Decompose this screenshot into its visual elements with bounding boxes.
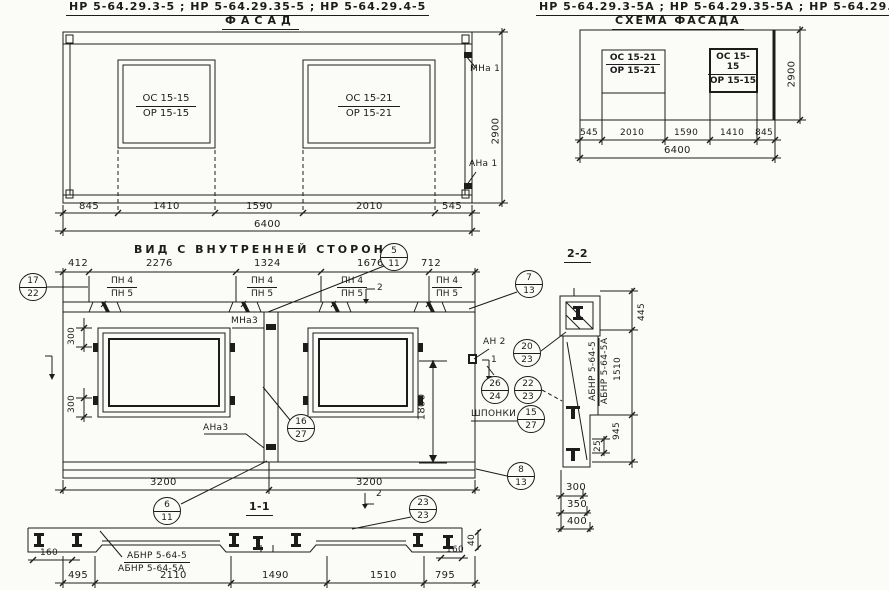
pn-bottom: ПН 5 xyxy=(432,288,462,299)
pn-mark: ПН 4 ПН 5 xyxy=(432,276,462,300)
dim-label: 300 xyxy=(566,482,586,494)
callout-top: 6 xyxy=(154,498,180,512)
dim-label: 412 xyxy=(68,258,88,270)
dim-label: 795 xyxy=(435,570,455,582)
callout-bottom: 22 xyxy=(20,288,46,299)
section-2-2-lines xyxy=(556,288,638,532)
dim-label: 40 xyxy=(467,534,477,546)
callout-bottom: 11 xyxy=(381,258,407,269)
callout-bottom: 27 xyxy=(518,420,544,431)
dim-label: 495 xyxy=(68,570,88,582)
pn-top: ПН 4 xyxy=(337,276,367,288)
drawing-sheet: НР 5-64.29.3-5 ; НР 5-64.29.35-5 ; НР 5-… xyxy=(0,0,889,590)
pn-bottom: ПН 5 xyxy=(247,288,277,299)
dim-label: 1490 xyxy=(262,570,289,582)
dim-label: 3200 xyxy=(356,477,383,489)
callout-bottom: 23 xyxy=(515,391,541,402)
callout-circle: 813 xyxy=(507,462,535,490)
callout-bottom: 23 xyxy=(410,510,436,521)
beam-mark-label: АБНР 5-64-5 xyxy=(124,551,190,563)
section-2-flag-label: 2 xyxy=(376,489,382,499)
facade-node-bottom-label: АНа 1 xyxy=(469,159,498,169)
dim-label: 845 xyxy=(79,201,99,213)
dim-label: 1590 xyxy=(674,128,698,138)
callout-bottom: 24 xyxy=(482,391,508,402)
window-mark-top: ОС 15-21 xyxy=(338,93,400,107)
facade-node-top-label: МНа 1 xyxy=(470,64,500,74)
dim-label: 3200 xyxy=(150,477,177,489)
window-mark-top: ОС 15-15 xyxy=(136,93,196,107)
pn-mark: ПН 4 ПН 5 xyxy=(107,276,137,300)
window-mark-bottom: ОР 15-21 xyxy=(338,107,400,120)
dim-label: 845 xyxy=(755,128,773,138)
dim-label: 2110 xyxy=(160,570,187,582)
dim-label: 300 xyxy=(67,395,77,413)
callout-bottom: 27 xyxy=(288,429,314,440)
callout-top: 16 xyxy=(288,415,314,429)
section-2-2-title: 2-2 xyxy=(564,248,591,263)
dim-label: 1410 xyxy=(153,201,180,213)
dim-label: 1410 xyxy=(720,128,744,138)
dim-label: 1800 xyxy=(416,394,428,421)
dim-label: 2010 xyxy=(356,201,383,213)
facade-window-right-mark: ОС 15-21 ОР 15-21 xyxy=(338,93,400,119)
callout-top: 23 xyxy=(410,496,436,510)
dim-label: 350 xyxy=(567,499,587,511)
callout-top: 22 xyxy=(515,377,541,391)
dim-label: 2900 xyxy=(490,118,502,145)
dim-label: 1510 xyxy=(613,357,623,381)
dim-label: 445 xyxy=(637,303,647,321)
dim-label: 1590 xyxy=(246,201,273,213)
callout-circle: 611 xyxy=(153,497,181,525)
callout-circle: 1527 xyxy=(517,405,545,433)
beam-mark-label: АБНР 5-64-5 xyxy=(588,341,598,401)
pn-bottom: ПН 5 xyxy=(337,288,367,299)
dim-label: 712 xyxy=(421,258,441,270)
dim-label: 545 xyxy=(442,201,462,213)
callout-top: 8 xyxy=(508,463,534,477)
window-mark-bottom: ОР 15-21 xyxy=(606,65,660,76)
callout-bottom: 13 xyxy=(516,285,542,296)
inner-node-top-label: МНа3 xyxy=(231,316,258,326)
beam-mark-label: АБНР 5-64-5А xyxy=(600,338,610,405)
schema-window-right-mark: ОС 15-15 ОР 15-15 xyxy=(708,52,758,86)
callout-circle: 2223 xyxy=(514,376,542,404)
facade-window-left-mark: ОС 15-15 ОР 15-15 xyxy=(136,93,196,119)
dim-label: 160 xyxy=(40,548,58,558)
dim-label: 1324 xyxy=(254,258,281,270)
dim-label: 2276 xyxy=(146,258,173,270)
keys-label: ШПОНКИ xyxy=(471,409,516,419)
inner-node-bottom-label: АНа3 xyxy=(203,423,228,433)
pn-mark: ПН 4 ПН 5 xyxy=(337,276,367,300)
schema-window-left-mark: ОС 15-21 ОР 15-21 xyxy=(606,53,660,77)
callout-circle: 2624 xyxy=(481,376,509,404)
dim-label: 160 xyxy=(446,545,464,555)
section-1-1-title: 1-1 xyxy=(246,501,273,516)
callout-circle: 713 xyxy=(515,270,543,298)
pn-mark: ПН 4 ПН 5 xyxy=(247,276,277,300)
pn-bottom: ПН 5 xyxy=(107,288,137,299)
facade-lines xyxy=(55,28,508,236)
callout-top: 7 xyxy=(516,271,542,285)
schema-title: СХЕМА ФАСАДА xyxy=(612,15,744,30)
dim-label: 2900 xyxy=(786,61,798,88)
callout-top: 5 xyxy=(381,244,407,258)
dim-label: 1510 xyxy=(370,570,397,582)
callout-bottom: 11 xyxy=(154,512,180,523)
dim-label: 6400 xyxy=(254,219,281,231)
pn-top: ПН 4 xyxy=(432,276,462,288)
dim-label: 945 xyxy=(612,422,622,440)
dim-label: 25 xyxy=(593,440,603,452)
dim-label: 400 xyxy=(567,516,587,528)
callout-circle: 1627 xyxy=(287,414,315,442)
window-mark-top: ОС 15-15 xyxy=(708,52,758,75)
pn-top: ПН 4 xyxy=(107,276,137,288)
callout-circle: 1722 xyxy=(19,273,47,301)
callout-circle: 2023 xyxy=(513,339,541,367)
dim-label: 545 xyxy=(580,128,598,138)
facade-title: ФАСАД xyxy=(222,15,299,30)
callout-bottom: 13 xyxy=(508,477,534,488)
callout-top: 17 xyxy=(20,274,46,288)
window-mark-bottom: ОР 15-15 xyxy=(708,75,758,86)
window-mark-bottom: ОР 15-15 xyxy=(136,107,196,120)
section-1-1-lines xyxy=(28,528,481,588)
inner-view-title: ВИД С ВНУТРЕННЕЙ СТОРОНЫ xyxy=(134,244,400,257)
an2-label: АН 2 xyxy=(483,337,506,347)
callout-circle: 511 xyxy=(380,243,408,271)
section-2-flag-label: 2 xyxy=(377,283,383,293)
dim-label: 2010 xyxy=(620,128,644,138)
pn-top: ПН 4 xyxy=(247,276,277,288)
callout-circle: 2323 xyxy=(409,495,437,523)
callout-bottom: 23 xyxy=(514,354,540,365)
dim-label: 300 xyxy=(67,327,77,345)
callout-top: 15 xyxy=(518,406,544,420)
callout-top: 26 xyxy=(482,377,508,391)
dim-label: 6400 xyxy=(664,145,691,157)
callout-top: 20 xyxy=(514,340,540,354)
window-mark-top: ОС 15-21 xyxy=(606,53,660,65)
schema-lines xyxy=(575,26,806,163)
section-1-flag-label: 1 xyxy=(491,355,497,365)
